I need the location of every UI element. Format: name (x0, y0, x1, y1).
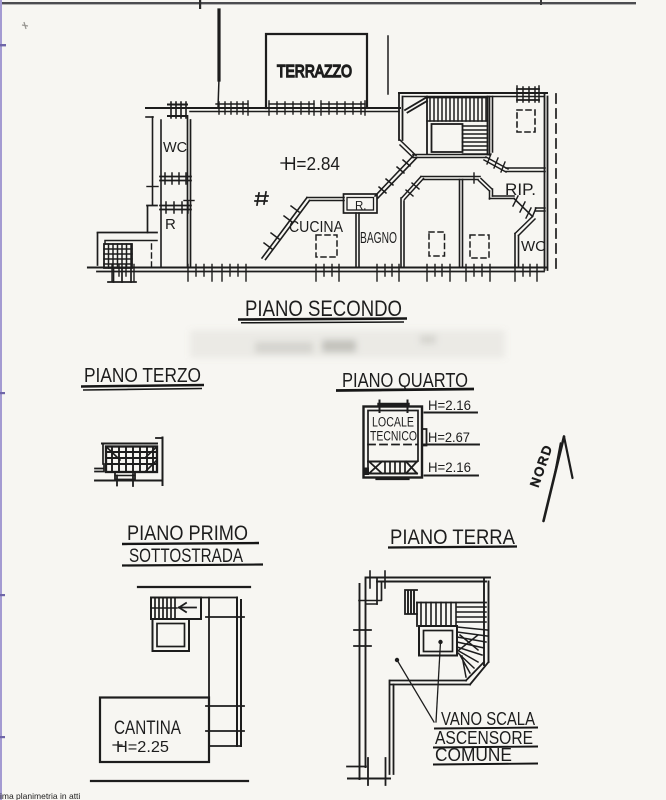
svg-text:H=2.25: H=2.25 (116, 739, 169, 756)
svg-text:ima planimetria in atti: ima planimetria in atti (0, 791, 80, 800)
svg-text:PIANO SECONDO: PIANO SECONDO (245, 296, 402, 321)
svg-text:TERRAZZO: TERRAZZO (277, 61, 352, 81)
svg-text:BAGNO: BAGNO (360, 230, 397, 247)
svg-text:R: R (165, 216, 176, 233)
svg-text:H=2.84: H=2.84 (284, 154, 340, 174)
svg-text:WC: WC (163, 140, 187, 156)
svg-text:H=2.67: H=2.67 (428, 429, 470, 445)
svg-text:VANO SCALA: VANO SCALA (441, 708, 536, 729)
svg-text:H=2.16: H=2.16 (428, 397, 471, 413)
svg-text:PIANO PRIMO: PIANO PRIMO (127, 522, 248, 545)
svg-text:R.: R. (355, 201, 367, 213)
svg-text:WC: WC (521, 238, 546, 255)
svg-text:CANTINA: CANTINA (114, 718, 181, 739)
svg-text:RIP.: RIP. (505, 180, 536, 199)
svg-text:H=2.16: H=2.16 (428, 459, 471, 475)
svg-text:COMUNE: COMUNE (435, 744, 512, 765)
svg-text:PIANO TERZO: PIANO TERZO (84, 365, 201, 387)
svg-text:CUCINA: CUCINA (289, 219, 343, 236)
svg-text:TECNICO: TECNICO (370, 428, 417, 444)
